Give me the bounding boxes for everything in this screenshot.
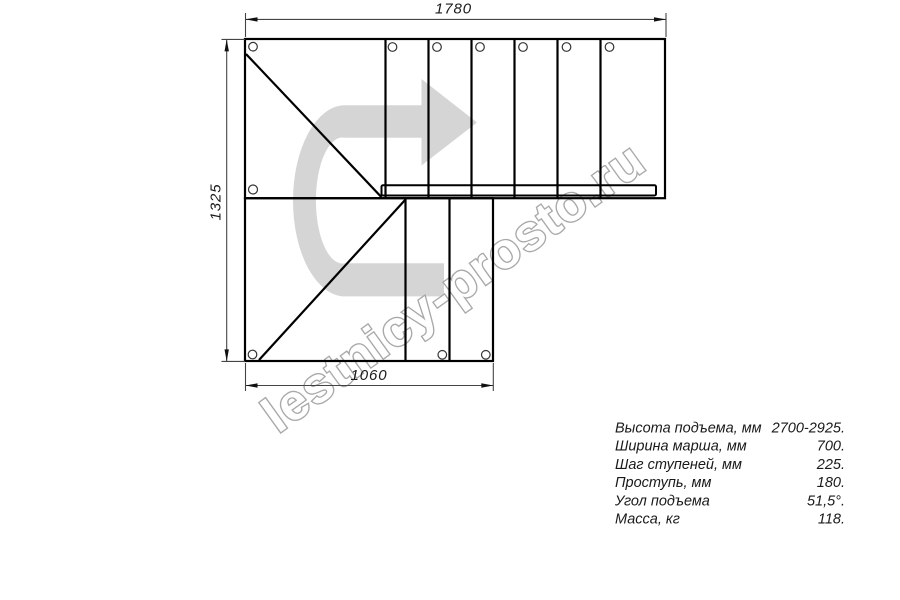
svg-text:Угол подъема: Угол подъема xyxy=(614,493,710,509)
svg-text:2700-2925.: 2700-2925. xyxy=(771,421,845,437)
svg-text:Шаг ступеней, мм: Шаг ступеней, мм xyxy=(615,457,742,473)
svg-text:700.: 700. xyxy=(817,439,845,455)
svg-text:Высота подъема, мм: Высота подъема, мм xyxy=(615,421,762,437)
svg-text:180.: 180. xyxy=(817,475,845,491)
svg-text:Ширина марша, мм: Ширина марша, мм xyxy=(615,439,747,455)
svg-text:1325: 1325 xyxy=(208,184,225,221)
svg-text:225.: 225. xyxy=(816,457,845,473)
svg-text:118.: 118. xyxy=(818,512,845,528)
svg-text:Проступь, мм: Проступь, мм xyxy=(615,475,711,491)
svg-text:1060: 1060 xyxy=(351,367,388,384)
svg-text:51,5°.: 51,5°. xyxy=(807,493,845,509)
svg-text:1780: 1780 xyxy=(435,0,472,17)
svg-text:Масса, кг: Масса, кг xyxy=(615,512,680,528)
